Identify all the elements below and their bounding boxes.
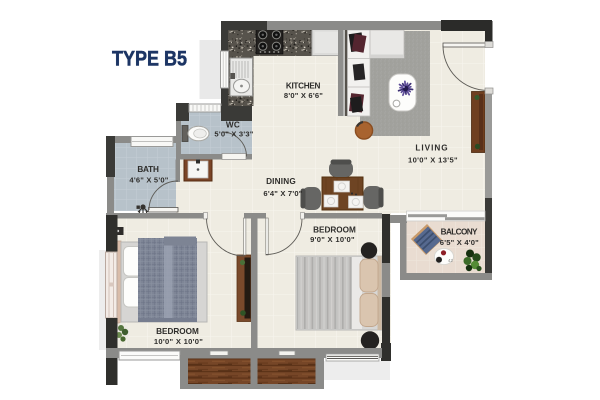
svg-text:BEDROOM: BEDROOM	[313, 226, 356, 235]
svg-text:10'0" X 13'5": 10'0" X 13'5"	[408, 156, 458, 165]
svg-text:DINING: DINING	[266, 177, 296, 186]
svg-text:TYPE B5: TYPE B5	[112, 47, 187, 71]
svg-text:LIVING: LIVING	[415, 144, 448, 153]
svg-text:BALCONY: BALCONY	[441, 228, 478, 237]
svg-text:BATH: BATH	[137, 165, 159, 174]
svg-text:BEDROOM: BEDROOM	[156, 327, 199, 336]
svg-text:4'6" X 5'0": 4'6" X 5'0"	[129, 176, 168, 185]
svg-text:6'5" X 4'0": 6'5" X 4'0"	[440, 238, 479, 247]
svg-text:42: 42	[448, 258, 453, 263]
svg-text:10'0" X 10'0": 10'0" X 10'0"	[154, 337, 203, 346]
svg-text:8'0" X 6'6": 8'0" X 6'6"	[284, 91, 323, 100]
svg-text:5'0" X 3'3": 5'0" X 3'3"	[214, 130, 253, 139]
svg-text:6'4" X 7'0": 6'4" X 7'0"	[263, 189, 302, 198]
svg-text:KITCHEN: KITCHEN	[286, 82, 321, 91]
svg-text:WC: WC	[226, 121, 240, 130]
svg-text:9'0" X 10'0": 9'0" X 10'0"	[310, 235, 355, 244]
